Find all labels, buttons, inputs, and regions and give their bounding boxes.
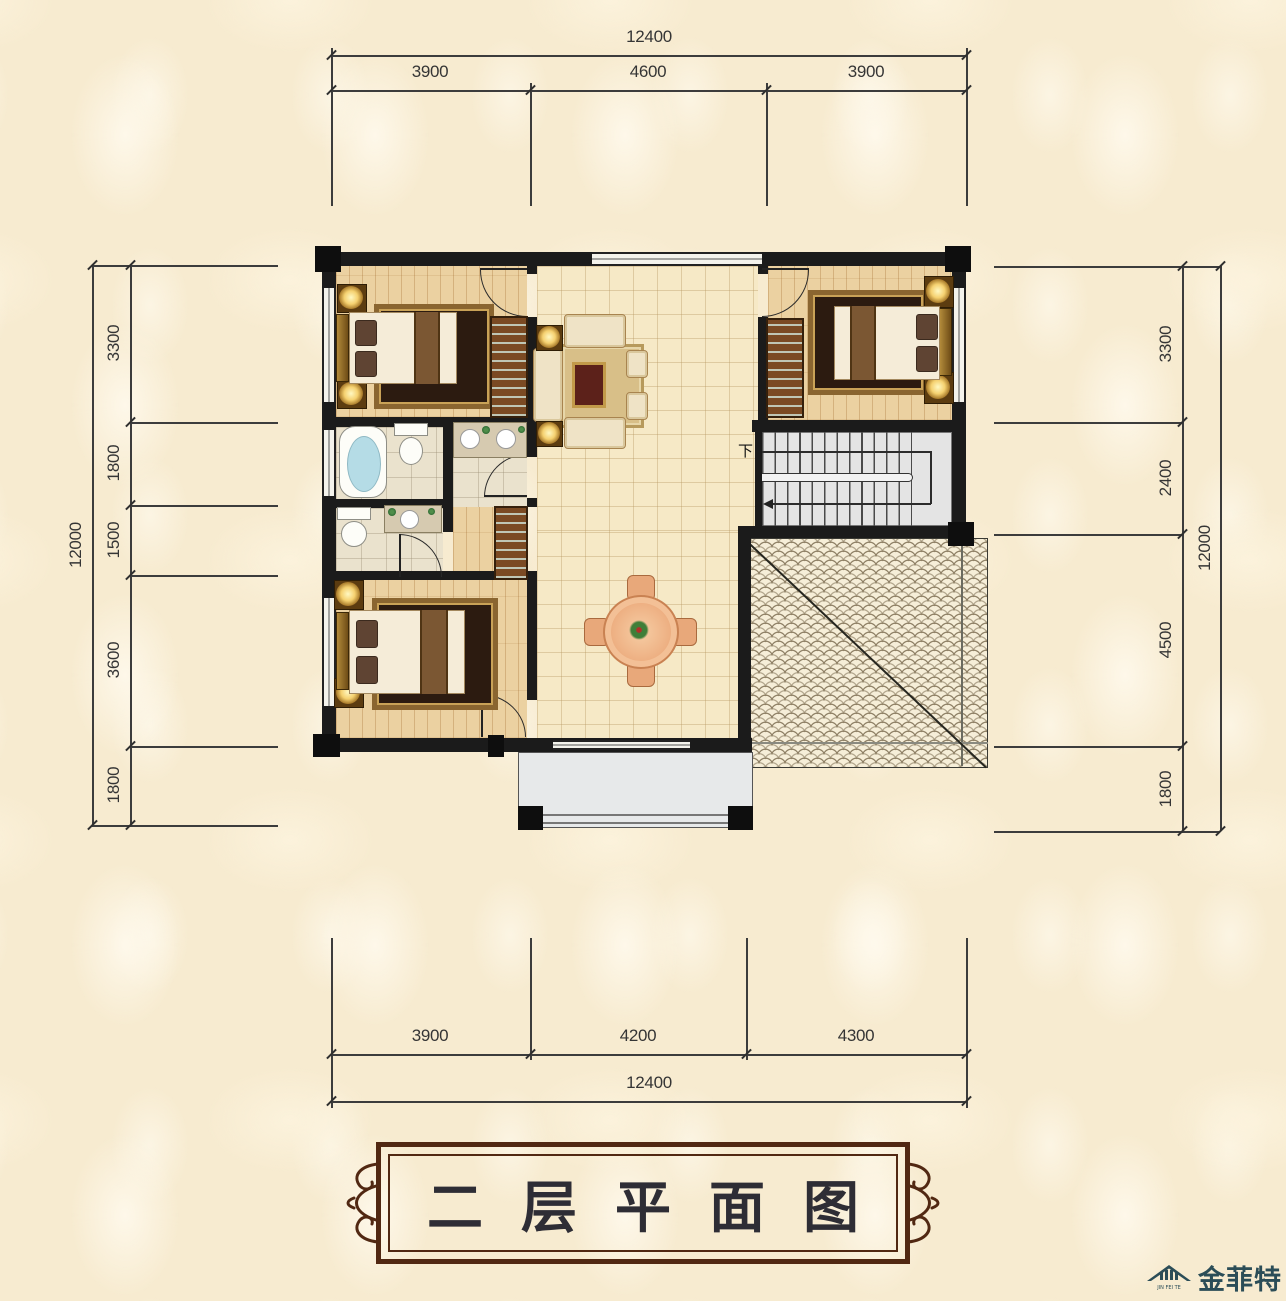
dim-ext	[994, 831, 1220, 833]
armchair-right	[626, 392, 648, 420]
vanity2-plant	[428, 508, 435, 515]
door-leaf-bedroom2	[762, 268, 809, 270]
door-leaf-vanity-room	[484, 495, 527, 497]
door-leaf-bathroom2	[399, 534, 401, 577]
sofa-corner-lamp	[538, 326, 560, 348]
wall-vanity-hall-b	[527, 498, 537, 507]
corner-post	[313, 734, 340, 757]
sofa-bottom	[564, 417, 626, 449]
dim-label-right-seg: 4500	[1157, 605, 1175, 675]
dim-top-total-line	[331, 55, 967, 57]
dim-label-left-seg: 3600	[105, 625, 123, 695]
floorplan-page: 12400 3900 4600 3900 3900 4200 4300 1240…	[0, 0, 1286, 1301]
dim-label-bottom-total: 12400	[589, 1074, 709, 1092]
dim-label-right-seg: 3300	[1157, 309, 1175, 379]
dim-ext	[130, 422, 278, 424]
balcony	[518, 752, 753, 828]
vanity-plant	[518, 426, 525, 433]
bedroom2-wardrobe	[766, 318, 804, 418]
dim-label-bottom-seg: 3900	[370, 1027, 490, 1045]
dim-ext	[994, 746, 1182, 748]
dim-ext	[530, 83, 532, 206]
corner-post	[948, 522, 974, 546]
door-leaf-bedroom1	[480, 268, 527, 270]
dim-bottom-seg-line	[331, 1054, 967, 1056]
sofa-corner-lamp	[538, 422, 560, 444]
bedroom1-headboard	[336, 314, 349, 382]
balcony-rail-line	[518, 814, 753, 816]
armchair-right	[626, 350, 648, 378]
vanity-sink	[460, 429, 480, 449]
dim-label-bottom-seg: 4300	[796, 1027, 916, 1045]
stair-walkline	[757, 451, 931, 453]
bedroom3-bed-runner	[420, 610, 448, 694]
dim-ext	[766, 83, 768, 206]
dim-label-right-total: 12000	[1196, 508, 1214, 588]
corner-post	[488, 735, 504, 757]
balcony-sliding-door	[553, 740, 690, 750]
bedroom2-pillow	[916, 314, 938, 340]
corner-post	[518, 806, 543, 830]
wall-stair-left	[755, 432, 762, 526]
logo-brand-text: 金菲特	[1198, 1258, 1282, 1297]
stair-down-label: 下	[738, 440, 753, 461]
title-banner-inner: 二层平面图	[388, 1154, 898, 1252]
dim-ext	[130, 505, 278, 507]
dim-left-total-line	[92, 265, 94, 825]
toilet2-tank	[337, 507, 371, 520]
vanity-sink	[496, 429, 516, 449]
wall-bed1-hall-a	[527, 266, 537, 274]
roof-eave-line-vertical	[961, 540, 963, 766]
title-banner-frame: 二层平面图	[376, 1142, 910, 1264]
dim-ext	[966, 938, 968, 1108]
dim-ext	[130, 746, 278, 748]
banner-ornament-left-icon	[340, 1156, 382, 1250]
stair-walkline	[930, 451, 932, 504]
corner-post	[945, 246, 971, 272]
bedroom1-pillow	[355, 320, 377, 346]
window-bedroom1	[322, 288, 336, 402]
wall-stairs-roof	[738, 526, 952, 538]
dim-ext	[92, 825, 278, 827]
vanity2-sink	[400, 510, 419, 529]
bedroom3-pillow	[356, 656, 378, 684]
bedroom1-wardrobe	[490, 316, 528, 418]
bathtub-basin	[347, 436, 381, 492]
coffee-table	[572, 362, 606, 408]
logo-house-icon: JIN FEI TE	[1146, 1259, 1192, 1295]
dim-top-seg-line	[331, 90, 967, 92]
stair-walkline	[772, 503, 931, 505]
dim-label-top-total: 12400	[589, 28, 709, 46]
window-hall-top	[592, 252, 762, 266]
corner-post	[728, 806, 753, 830]
dim-ext	[331, 48, 333, 206]
dim-ext	[966, 48, 968, 206]
window-bathroom1	[322, 430, 336, 496]
bedroom2-pillow	[916, 346, 938, 372]
page-title: 二层平面图	[389, 1163, 897, 1244]
bedroom1-lamp	[339, 286, 363, 309]
toilet2-bowl	[341, 521, 367, 547]
wall-bath-split	[443, 422, 453, 532]
dim-label-left-total: 12000	[67, 505, 85, 585]
bedroom1-bed-runner	[414, 312, 440, 384]
dim-label-right-seg: 2400	[1157, 443, 1175, 513]
wall-bed2-stairs	[752, 420, 952, 432]
dim-bottom-total-line	[331, 1101, 967, 1103]
bedroom1-pillow	[355, 351, 377, 377]
dim-label-top-seg: 3900	[370, 63, 490, 81]
vanity2-plant	[388, 508, 396, 516]
dim-ext	[92, 265, 278, 267]
dim-ext	[331, 938, 333, 1108]
corner-post	[315, 246, 341, 272]
stair-walkline-arrow	[763, 499, 773, 509]
dim-label-right-seg: 1800	[1157, 754, 1175, 824]
brand-logo: JIN FEI TE 金菲特	[1146, 1256, 1282, 1298]
roof-eave-line-horizontal	[745, 742, 988, 744]
dim-ext	[994, 266, 1220, 268]
corridor-closet	[494, 506, 528, 580]
bedroom3-headboard	[336, 612, 349, 690]
stair-handrail	[756, 473, 913, 482]
banner-ornament-right-icon	[904, 1156, 946, 1250]
dim-label-left-seg: 1500	[105, 505, 123, 575]
dim-label-top-seg: 3900	[806, 63, 926, 81]
dim-label-bottom-seg: 4200	[578, 1027, 698, 1045]
logo-pinyin: JIN FEI TE	[1156, 1285, 1181, 1291]
dim-label-top-seg: 4600	[588, 63, 708, 81]
dim-ext	[530, 938, 532, 1060]
vanity-plant	[482, 426, 490, 434]
dim-left-seg-line	[130, 265, 132, 825]
dim-label-left-seg: 1800	[105, 428, 123, 498]
bedroom2-bed-runner	[850, 306, 876, 380]
dim-ext	[130, 575, 278, 577]
wall-roof-left	[738, 532, 751, 746]
window-bedroom2	[952, 288, 966, 402]
bedroom2-lamp	[926, 279, 950, 303]
dim-ext	[994, 534, 1182, 536]
dining-centerpiece	[629, 620, 649, 640]
sofa-long-left	[533, 348, 563, 422]
sofa-top	[564, 314, 626, 348]
dim-ext	[746, 938, 748, 1060]
wall-bed3-hall	[527, 580, 537, 700]
dim-label-left-seg: 1800	[105, 750, 123, 820]
bedroom3-lamp	[336, 582, 360, 606]
bedroom2-headboard	[939, 308, 952, 376]
toilet-tank	[394, 423, 428, 436]
balcony-rail-line	[518, 822, 753, 824]
bedroom3-pillow	[356, 620, 378, 648]
toilet-bowl	[399, 437, 423, 465]
bedroom1-lamp	[339, 382, 363, 405]
dim-label-left-seg: 3300	[105, 308, 123, 378]
dim-right-total-line	[1220, 266, 1222, 831]
dim-ext	[994, 422, 1182, 424]
